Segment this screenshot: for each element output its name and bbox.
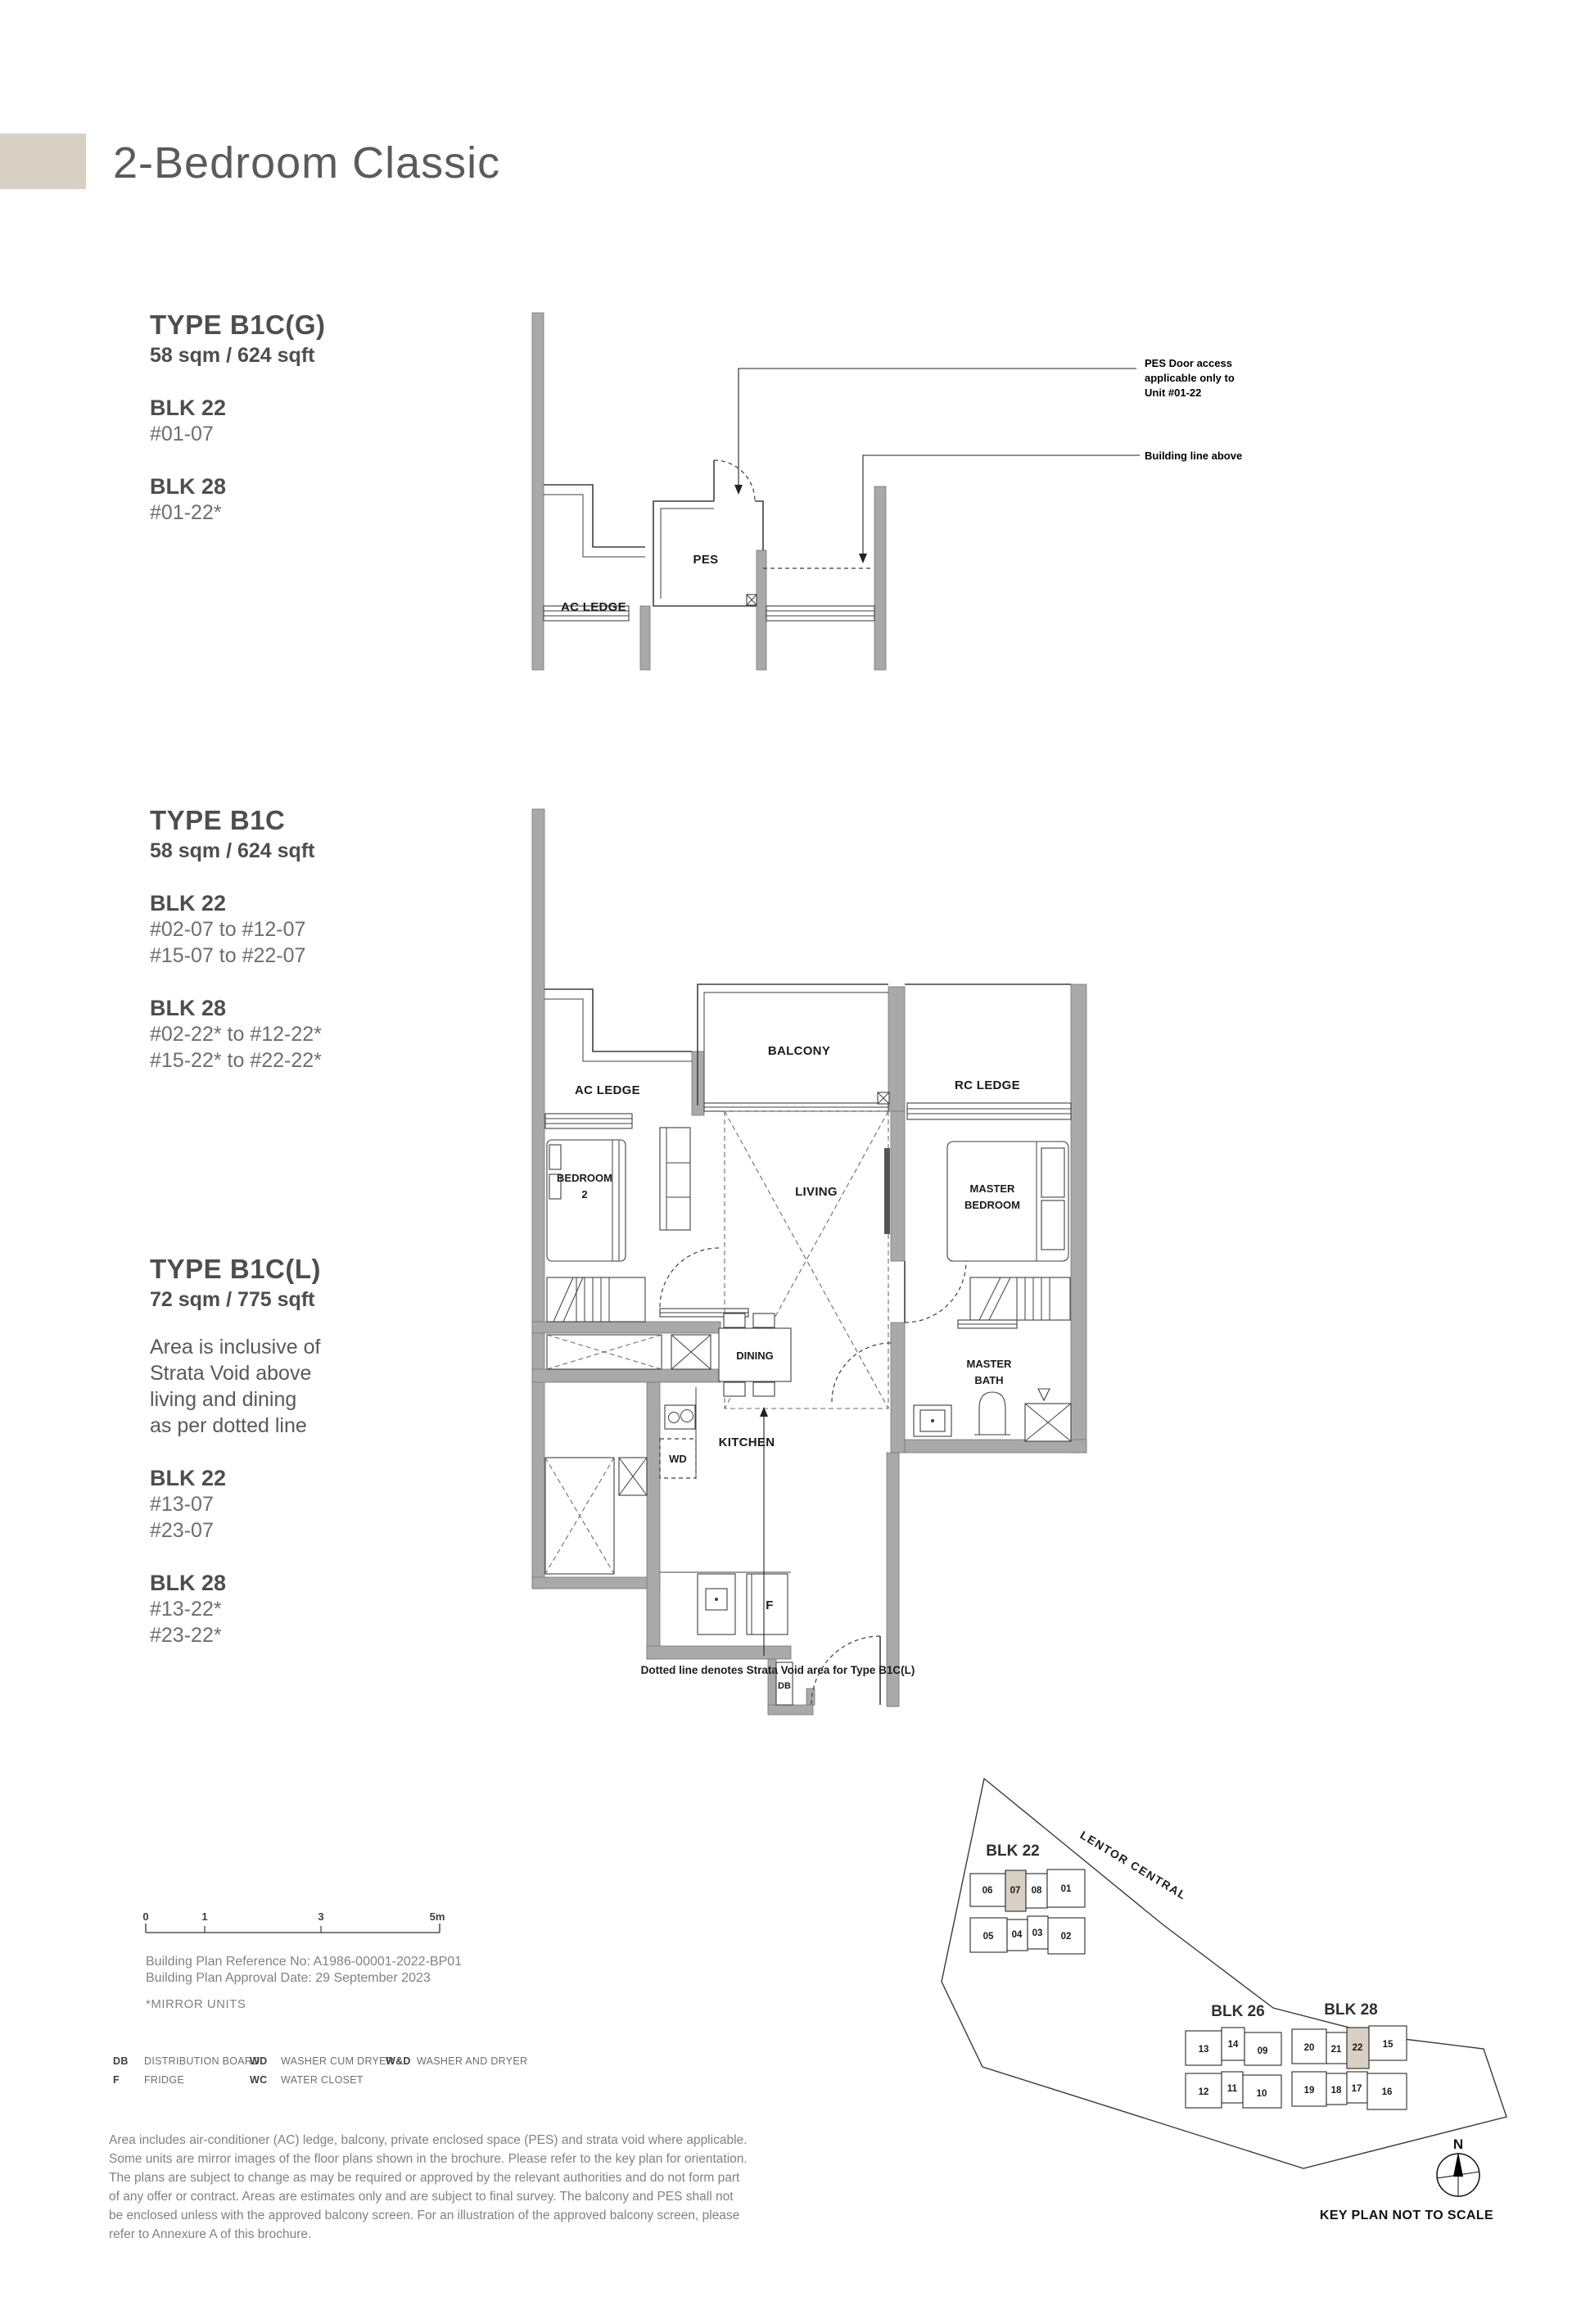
ac-ledge-outline — [544, 485, 645, 557]
master-wardrobe — [958, 1277, 1070, 1328]
unit-line: #02-22* to #12-22* — [150, 1021, 420, 1047]
type-b1cg-info: TYPE B1C(G) 58 sqm / 624 sqft BLK 22 #01… — [150, 310, 420, 526]
legend-label: WASHER AND DRYER — [417, 2055, 527, 2067]
master-bedroom-label-2: BEDROOM — [964, 1199, 1020, 1211]
living-sofa — [660, 1128, 690, 1230]
type-b1cl-name: TYPE B1C(L) — [150, 1254, 420, 1285]
type-b1c-info: TYPE B1C 58 sqm / 624 sqft BLK 22 #02-07… — [150, 805, 420, 1074]
legend-item: WDWASHER CUM DRYER — [250, 2055, 394, 2074]
strata-void-caption: Dotted line denotes Strata Void area for… — [641, 1664, 915, 1676]
balcony-label: BALCONY — [768, 1044, 830, 1058]
blk26-unit-numbers: 13 14 09 12 11 10 — [1199, 2040, 1268, 2099]
svg-text:06: 06 — [982, 1886, 993, 1896]
kitchen-label: KITCHEN — [719, 1436, 775, 1449]
legend-label: DISTRIBUTION BOARD — [144, 2055, 260, 2067]
legend-column: W&DWASHER AND DRYER — [386, 2055, 527, 2074]
unit-line: #13-07 — [150, 1491, 420, 1517]
scale-tick-0: 0 — [142, 1910, 148, 1923]
svg-text:14: 14 — [1228, 2040, 1239, 2050]
strata-void-note: Area is inclusive of Strata Void above l… — [150, 1334, 420, 1439]
legend-label: WASHER CUM DRYER — [281, 2055, 394, 2067]
ac-ledge-label: AC LEDGE — [561, 600, 626, 614]
svg-text:09: 09 — [1258, 2046, 1268, 2056]
svg-text:16: 16 — [1382, 2087, 1393, 2097]
blk-group: BLK 28 #13-22* #23-22* — [150, 1570, 420, 1648]
blk-name: BLK 28 — [150, 1570, 420, 1596]
legend-abbr: WD — [250, 2055, 281, 2067]
building-plan-approval: Building Plan Approval Date: 29 Septembe… — [146, 1970, 462, 1987]
blk-name: BLK 28 — [150, 473, 420, 500]
type-b1cg-name: TYPE B1C(G) — [150, 310, 420, 341]
page-title: 2-Bedroom Classic — [113, 138, 500, 188]
unit-line: #01-07 — [150, 421, 420, 447]
dining-label: DINING — [736, 1350, 774, 1362]
blk-name: BLK 22 — [150, 1465, 420, 1491]
fridge-label: F — [766, 1598, 773, 1612]
blk-name: BLK 28 — [150, 995, 420, 1021]
scale-tick-3: 3 — [318, 1910, 323, 1923]
scale-tick-5m: 5m — [430, 1910, 445, 1923]
svg-text:04: 04 — [1012, 1930, 1023, 1940]
legend-item: W&DWASHER AND DRYER — [386, 2055, 527, 2074]
blk28-label: BLK 28 — [1324, 2001, 1377, 2019]
wd-label: WD — [669, 1453, 687, 1465]
unit-line: #23-22* — [150, 1622, 420, 1648]
legend-abbr: W&D — [386, 2055, 417, 2067]
type-b1cl-area: 72 sqm / 775 sqft — [150, 1286, 420, 1313]
ac-ledge-outline — [544, 989, 692, 1061]
legend-label: WATER CLOSET — [281, 2074, 364, 2086]
key-plan: LENTOR CENTRAL BLK 22 06 07 08 01 05 04 … — [917, 1752, 1572, 2244]
legend-item: DBDISTRIBUTION BOARD — [113, 2055, 260, 2074]
legend-column: DBDISTRIBUTION BOARD FFRIDGE — [113, 2055, 260, 2093]
svg-text:12: 12 — [1199, 2087, 1209, 2097]
svg-text:Unit #01-22: Unit #01-22 — [1145, 387, 1201, 399]
bedroom2-wardrobe — [547, 1277, 645, 1322]
legend-abbr: DB — [113, 2055, 144, 2067]
rc-ledge — [905, 984, 1071, 1119]
svg-text:02: 02 — [1061, 1932, 1072, 1942]
type-b1cl-info: TYPE B1C(L) 72 sqm / 775 sqft Area is in… — [150, 1254, 420, 1648]
svg-text:applicable only to: applicable only to — [1145, 372, 1235, 384]
legend-abbr: F — [113, 2074, 144, 2086]
legend-abbr: WC — [250, 2074, 281, 2086]
svg-text:11: 11 — [1227, 2084, 1238, 2094]
svg-text:05: 05 — [983, 1932, 994, 1942]
blk-name: BLK 22 — [150, 395, 420, 421]
legend-item: WCWATER CLOSET — [250, 2074, 394, 2093]
leader-building-line — [859, 455, 1140, 563]
svg-text:01: 01 — [1061, 1884, 1072, 1894]
blk-group: BLK 22 #02-07 to #12-07 #15-07 to #22-07 — [150, 890, 420, 969]
scale-bar: 0 1 3 5m — [123, 1908, 467, 1945]
svg-text:20: 20 — [1304, 2043, 1315, 2053]
svg-text:10: 10 — [1257, 2089, 1267, 2099]
blk-name: BLK 22 — [150, 890, 420, 916]
kitchen-counter — [660, 1387, 791, 1634]
blk-group: BLK 22 #01-07 — [150, 395, 420, 447]
ac-ledge-label: AC LEDGE — [575, 1083, 640, 1097]
unit-line: #23-07 — [150, 1517, 420, 1544]
mirror-units-note: *MIRROR UNITS — [146, 1996, 462, 2013]
unit-line: #02-07 to #12-07 — [150, 916, 420, 943]
blk26-label: BLK 26 — [1211, 2003, 1264, 2020]
rc-ledge-label: RC LEDGE — [955, 1078, 1020, 1092]
bedroom2-sliding-door — [660, 1248, 748, 1317]
site-boundary — [942, 1779, 1506, 2168]
annotation-building-line: Building line above — [1145, 450, 1242, 462]
building-plan-reference: Building Plan Reference No: A1986-00001-… — [146, 1954, 462, 1970]
living-label: LIVING — [795, 1185, 838, 1199]
ac-unit-box — [747, 595, 757, 605]
annotation-pes-door: PES Door access applicable only to Unit … — [1145, 357, 1235, 399]
disclaimer-text: Area includes air-conditioner (AC) ledge… — [109, 2131, 749, 2244]
note-line: Strata Void above — [150, 1360, 420, 1386]
road-label: LENTOR CENTRAL — [1078, 1828, 1190, 1901]
blk22-label: BLK 22 — [986, 1842, 1039, 1860]
blk-group: BLK 22 #13-07 #23-07 — [150, 1465, 420, 1544]
key-plan-note: KEY PLAN NOT TO SCALE — [1320, 2209, 1493, 2222]
pes-door — [714, 460, 755, 501]
note-line: Area is inclusive of — [150, 1334, 420, 1360]
blk-group: BLK 28 #02-22* to #12-22* #15-22* to #22… — [150, 995, 420, 1074]
svg-text:15: 15 — [1383, 2040, 1394, 2050]
master-door — [905, 1261, 966, 1323]
svg-text:08: 08 — [1032, 1886, 1042, 1896]
db-label: DB — [778, 1681, 791, 1691]
legend-column: WDWASHER CUM DRYER WCWATER CLOSET — [250, 2055, 394, 2093]
svg-text:PES Door access: PES Door access — [1145, 357, 1232, 369]
unit-line: #15-07 to #22-07 — [150, 943, 420, 969]
floor-plan-b1cg: AC LEDGE PES PES Door access applicable … — [491, 303, 1310, 721]
north-arrow-icon — [1437, 2152, 1479, 2196]
leader-pes-door — [734, 368, 1136, 495]
tv-console — [884, 1148, 890, 1234]
master-bedroom-label: MASTER — [970, 1182, 1016, 1195]
bedroom2-label: BEDROOM — [557, 1172, 612, 1184]
bedroom2-bed — [547, 1140, 626, 1261]
blk-group: BLK 28 #01-22* — [150, 473, 420, 526]
scale-tick-1: 1 — [201, 1910, 207, 1923]
master-bath-fixtures — [832, 1343, 1071, 1441]
svg-text:21: 21 — [1331, 2045, 1342, 2055]
accent-block — [0, 133, 86, 189]
north-label: N — [1453, 2136, 1463, 2152]
unit-line: #13-22* — [150, 1596, 420, 1622]
legend-label: FRIDGE — [144, 2074, 184, 2086]
note-line: as per dotted line — [150, 1413, 420, 1439]
svg-text:22: 22 — [1353, 2043, 1363, 2053]
svg-text:18: 18 — [1331, 2086, 1342, 2096]
unit-line: #01-22* — [150, 500, 420, 526]
svg-text:13: 13 — [1199, 2045, 1209, 2055]
bedroom2-label-2: 2 — [581, 1188, 587, 1200]
building-plan-info: Building Plan Reference No: A1986-00001-… — [146, 1954, 462, 2013]
svg-text:19: 19 — [1304, 2086, 1315, 2096]
pes-label: PES — [693, 553, 719, 567]
unit-line: #15-22* to #22-22* — [150, 1047, 420, 1074]
master-bath-label: MASTER — [967, 1358, 1013, 1370]
floor-plan-b1c: AC LEDGE BALCONY RC LEDGE BEDROOM 2 — [491, 803, 1310, 1744]
type-b1c-name: TYPE B1C — [150, 805, 420, 836]
note-line: living and dining — [150, 1386, 420, 1413]
legend-item: FFRIDGE — [113, 2074, 260, 2093]
svg-text:03: 03 — [1032, 1928, 1043, 1938]
bedroom2-window — [545, 1114, 632, 1128]
type-b1cg-area: 58 sqm / 624 sqft — [150, 342, 420, 368]
master-bath-label-2: BATH — [974, 1374, 1003, 1386]
svg-text:07: 07 — [1010, 1886, 1021, 1896]
walls — [532, 809, 1086, 1715]
svg-text:17: 17 — [1352, 2084, 1362, 2094]
type-b1c-area: 58 sqm / 624 sqft — [150, 838, 420, 864]
